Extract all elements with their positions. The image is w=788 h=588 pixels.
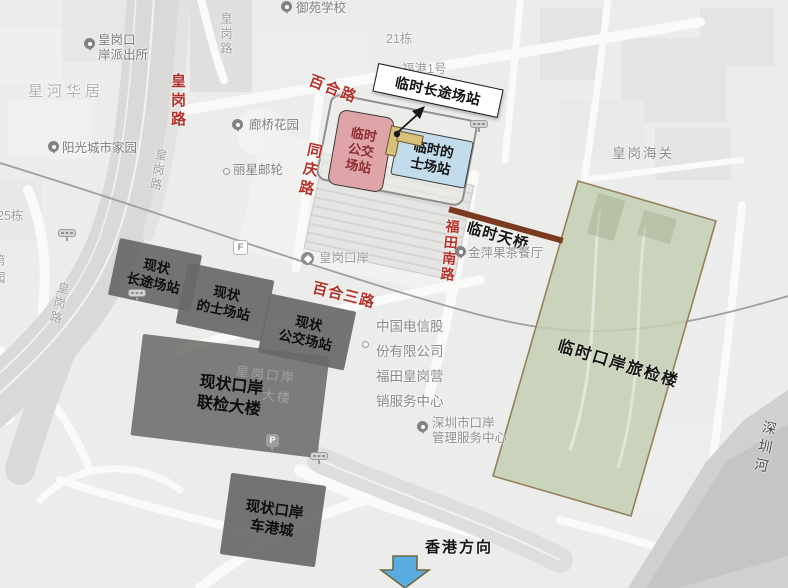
hongkong-direction-label: 香港方向: [425, 536, 493, 557]
langqiao-garden-pin[interactable]: [232, 119, 243, 130]
basemap-label-dalou: 大楼: [261, 384, 293, 407]
road-label-huanggang-gray-2: 皇岗路: [146, 147, 169, 194]
port-admin-center-pin[interactable]: [417, 421, 428, 432]
police-station-line2: 岸派出所: [98, 48, 148, 63]
police-station-label: 皇岗口 岸派出所: [98, 33, 148, 63]
map-canvas[interactable]: 现状 长途场站 现状 的士场站 现状 公交场站 现状口岸 联检大楼 现状口岸 车…: [0, 0, 788, 588]
edge-clipped-char-2: 园: [0, 271, 6, 286]
langqiao-garden-label: 廊桥花园: [249, 118, 299, 133]
jinping-restaurant-pin[interactable]: [455, 246, 466, 257]
jinping-restaurant-label: 金萍果茶餐厅: [468, 246, 543, 261]
callout-temp-longdistance-text: 临时长途场站: [393, 72, 482, 110]
huanggang-customs-label: 皇岗海关: [612, 146, 674, 161]
lixing-cruise-label: 丽星邮轮: [233, 163, 283, 178]
police-station-line1: 皇岗口: [98, 33, 148, 48]
traffic-light-icon: [58, 229, 76, 237]
metro-station-label: 皇岗口岸: [319, 251, 369, 266]
traffic-light-icon: [128, 289, 146, 297]
road-label-huanggang-rd: 皇岗路: [167, 73, 188, 130]
edge-clipped-char-1: 第: [0, 254, 6, 269]
building-25-label: 25栋: [0, 209, 23, 224]
temp-inspection-zone-label: 临时口岸旅检楼: [555, 332, 683, 392]
port-admin-center-label: 深圳市口岸 管理服务中心: [432, 416, 507, 446]
china-telecom-line1: 中国电信股: [376, 314, 444, 339]
temp-bus-line3: 场站: [344, 157, 372, 177]
xinghe-estate-label: 星河华居: [28, 84, 104, 99]
parking-icon[interactable]: P: [266, 434, 279, 447]
traffic-light-icon: [310, 452, 328, 460]
china-telecom-line2: 份有限公司: [376, 339, 444, 364]
china-telecom-icon[interactable]: [362, 341, 369, 348]
china-telecom-line3: 福田皇岗营: [376, 364, 444, 389]
metro-station-icon[interactable]: [301, 252, 314, 265]
sunshine-estate-pin[interactable]: [48, 141, 59, 152]
station-existing-taxi: 现状 的士场站: [176, 263, 275, 342]
shenzhen-river-label: 深圳河: [751, 419, 778, 478]
road-label-huanggang-gray-3: 皇岗路: [46, 280, 71, 327]
port-admin-line2: 管理服务中心: [432, 431, 507, 446]
lixing-cruise-icon[interactable]: [223, 168, 230, 175]
building-existing-joint-inspection: 现状口岸 联检大楼: [130, 334, 329, 458]
metro-exit-f-icon[interactable]: F: [233, 240, 248, 255]
sunshine-estate-label: 阳光城市家园: [62, 141, 137, 156]
yuyuan-school-pin[interactable]: [281, 1, 292, 12]
building-existing-port-plaza: 现状口岸 车港城: [220, 473, 326, 568]
hongkong-direction-arrow: [381, 556, 429, 588]
road-label-huanggang-gray-1: 皇岗路: [218, 12, 233, 57]
port-admin-line1: 深圳市口岸: [432, 416, 507, 431]
police-station-pin[interactable]: [84, 38, 95, 49]
china-telecom-label: 中国电信股 份有限公司 福田皇岗营 销服务中心: [376, 314, 444, 414]
yuyuan-school-label: 御苑学校: [296, 1, 346, 16]
china-telecom-line4: 销服务中心: [376, 389, 444, 414]
traffic-light-icon: [470, 120, 488, 128]
building-21-label: 21栋: [386, 32, 412, 47]
